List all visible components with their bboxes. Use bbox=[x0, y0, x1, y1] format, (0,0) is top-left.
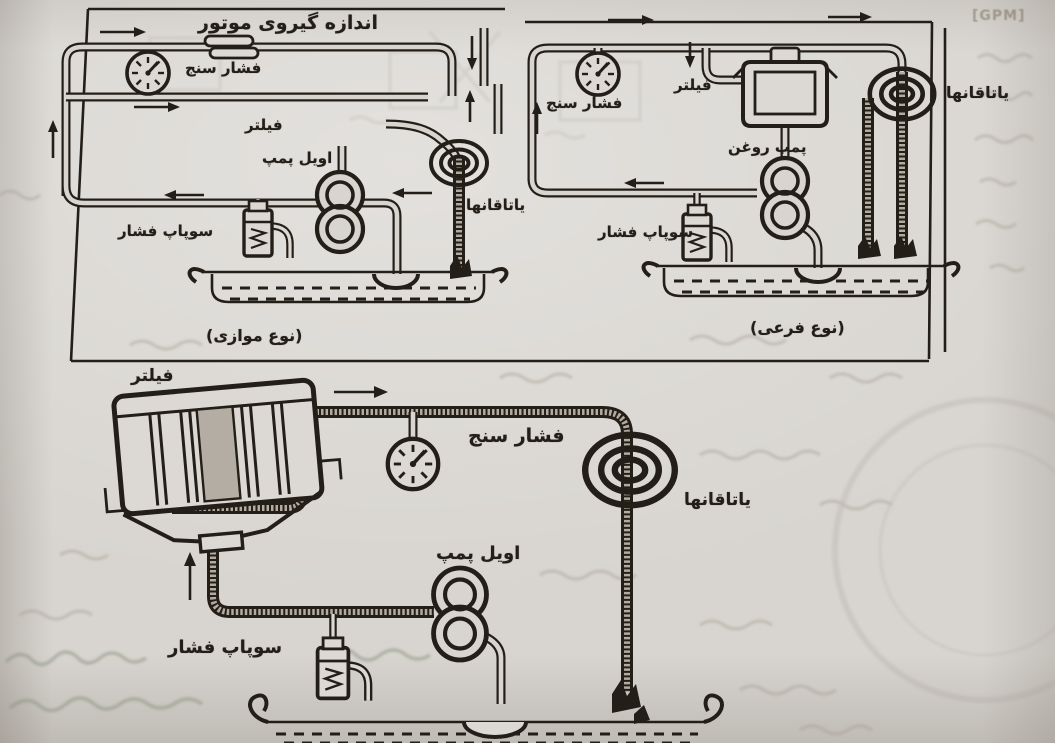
diagram-fullflow-type bbox=[97, 378, 722, 743]
label-bearings: یاتاقانها bbox=[946, 84, 1009, 102]
oil-filter-icon bbox=[97, 378, 346, 560]
book-page-photo: اندازه گیروی موتور فشار سنج فیلتر اویل پ… bbox=[0, 0, 1055, 743]
label-oil-pump: اویل پمپ bbox=[436, 544, 520, 564]
pressure-gauge-icon bbox=[388, 439, 438, 489]
pressure-gauge-icon bbox=[577, 53, 619, 95]
label-pressure-valve: سوپاپ فشار bbox=[118, 223, 213, 240]
caption-bypass-type: (نوع فرعی) bbox=[750, 319, 845, 337]
diagram-title: اندازه گیروی موتور bbox=[198, 13, 378, 34]
label-oil-pump: اویل پمپ bbox=[262, 150, 332, 167]
bleed-through-gpm-text: [GPM] bbox=[972, 8, 1025, 24]
label-filter: فیلتر bbox=[674, 77, 712, 94]
oil-pump-icon bbox=[762, 158, 808, 238]
oil-pan-icon bbox=[190, 255, 507, 302]
oil-pump-icon bbox=[317, 172, 363, 252]
oil-pump-icon bbox=[434, 568, 487, 660]
caption-parallel-type: (نوع موازی) bbox=[206, 327, 302, 345]
label-pressure-valve: سوپاپ فشار bbox=[168, 638, 282, 658]
label-pressure-valve: سوپاپ فشار bbox=[598, 224, 693, 241]
pressure-gauge-icon bbox=[127, 52, 169, 94]
label-pressure-gauge: فشار سنج bbox=[468, 426, 565, 447]
pressure-valve-icon bbox=[244, 201, 290, 258]
pipe-coupling-icon bbox=[205, 36, 253, 46]
oil-filter-icon bbox=[733, 48, 837, 126]
label-bearings: یاتاقانها bbox=[684, 491, 751, 510]
label-filter: فیلتر bbox=[245, 117, 283, 134]
label-bearings: یاتاقانها bbox=[466, 197, 525, 214]
label-pressure-gauge: فشار سنج bbox=[546, 95, 622, 112]
pressure-valve-icon bbox=[318, 638, 369, 701]
label-pressure-gauge: فشار سنج bbox=[185, 60, 261, 77]
label-oil-pump: پمپ روغن bbox=[728, 139, 807, 156]
label-filter: فیلتر bbox=[131, 367, 174, 386]
